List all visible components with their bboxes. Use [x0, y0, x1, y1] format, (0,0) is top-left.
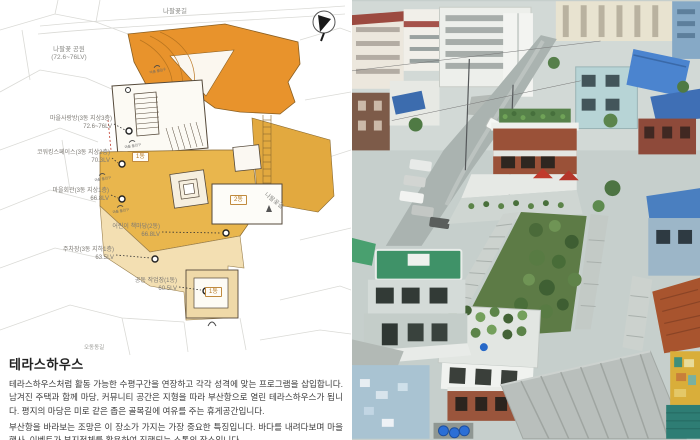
site-plan-panel: 마을 출입구 마을 출입구 마을 출입구 마을 출입구 [0, 0, 351, 440]
courtyard-detail [170, 170, 208, 208]
description-paragraph-1: 테라스하우스처럼 활동 가능한 수평구간을 연장하고 각각 성격에 맞는 프로그… [9, 378, 343, 418]
road-label-bottom: 오동동길 [84, 345, 104, 352]
annotation-village-room: 마을사랑방(3동 지상3층) 72.6~76LV [8, 116, 112, 132]
project-description: 테라스하우스 테라스하우스처럼 활동 가능한 수평구간을 연장하고 각각 성격에… [9, 354, 343, 440]
north-compass-icon [313, 11, 335, 41]
annotation-parking: 주차장(3동 지하1층) 63.5LV [28, 247, 114, 263]
annotation-kids-yard: 어린이 책마당(2동) 66.8LV [98, 224, 160, 240]
annotation-workshop: 공동 작업장(1동) 60.5LV [128, 278, 177, 294]
building-badge-2: 2동 [230, 195, 247, 205]
architecture-board: 마을 출입구 마을 출입구 마을 출입구 마을 출입구 [0, 0, 700, 440]
road-label-top: 나팔꽃길 [140, 8, 210, 16]
annotation-coworking: 코워킹스페이스(3동 지상2층) 70.3LV [0, 150, 110, 166]
annotation-hall: 마을회관(3동 지상1층) 66.8LV [8, 188, 109, 204]
park-level: (72.6~76LV) [51, 54, 86, 61]
park-name: 나팔꽃 공원 [53, 46, 85, 53]
project-title: 테라스하우스 [9, 354, 343, 373]
building-badge-1: 1동 [132, 152, 149, 162]
site-plan-drawing: 마을 출입구 마을 출입구 마을 출입구 마을 출입구 [0, 0, 351, 356]
building-badge-3: 1동 [205, 287, 222, 297]
park-label: 나팔꽃 공원 (72.6~76LV) [30, 46, 108, 62]
roof-garden [499, 109, 571, 125]
aerial-photo [352, 0, 700, 440]
description-paragraph-2: 부산항을 바라보는 조망은 이 장소가 가지는 가장 중요한 특징입니다. 바다… [9, 421, 343, 440]
workshop-building [186, 270, 238, 326]
